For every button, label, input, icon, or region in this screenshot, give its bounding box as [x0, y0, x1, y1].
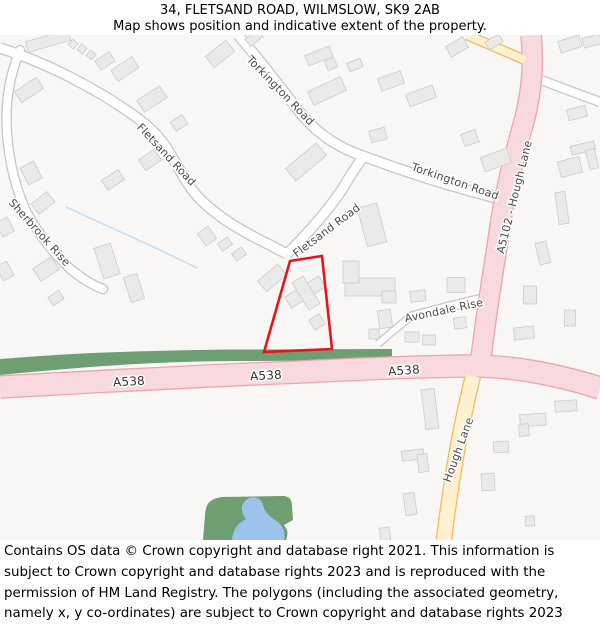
building — [343, 261, 359, 283]
road-label: A538 — [388, 362, 421, 378]
report-header: 34, FLETSAND ROAD, WILMSLOW, SK9 2AB Map… — [0, 0, 600, 35]
map: Fletsand RoadTorkington RoadTorkington R… — [0, 35, 600, 540]
building — [453, 317, 466, 330]
road-label: A538 — [250, 368, 283, 384]
building — [447, 278, 465, 293]
building — [377, 309, 392, 329]
building — [382, 291, 396, 303]
road-label: A538 — [113, 374, 146, 390]
building — [417, 453, 429, 472]
building — [525, 516, 535, 527]
building — [481, 473, 495, 491]
page-title: 34, FLETSAND ROAD, WILMSLOW, SK9 2AB — [0, 3, 600, 19]
copyright-footer: Contains OS data © Crown copyright and d… — [0, 540, 600, 625]
building — [513, 326, 534, 340]
building — [423, 335, 436, 345]
building — [524, 286, 537, 304]
building — [369, 329, 379, 339]
property-map-report: 34, FLETSAND ROAD, WILMSLOW, SK9 2AB Map… — [0, 0, 600, 625]
building — [405, 332, 419, 342]
building — [379, 527, 391, 540]
page-subtitle: Map shows position and indicative extent… — [0, 19, 600, 34]
building — [410, 290, 426, 303]
building — [519, 424, 530, 437]
building — [555, 400, 578, 413]
map-canvas: Fletsand RoadTorkington RoadTorkington R… — [0, 35, 600, 540]
building — [493, 441, 509, 453]
building — [565, 310, 576, 326]
